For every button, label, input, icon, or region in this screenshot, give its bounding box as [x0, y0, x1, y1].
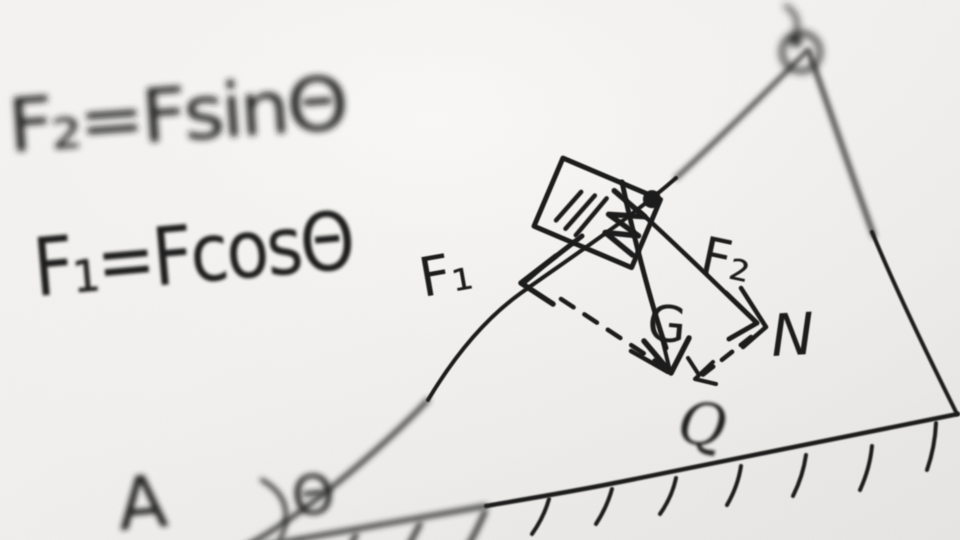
physics-force-diagram-photo: F₂=FsinΘ F₁=FcosΘ [0, 0, 960, 540]
f1-label: F₁ [414, 239, 477, 310]
normal-label: N [769, 300, 816, 370]
apex-dot [790, 35, 802, 47]
photo-canvas: F₂=FsinΘ F₁=FcosΘ [0, 0, 960, 540]
q-label: Q [674, 388, 731, 462]
theta-label: Θ [289, 462, 338, 529]
vertex-a-label: A [114, 459, 170, 540]
gravity-label: G [645, 294, 689, 355]
